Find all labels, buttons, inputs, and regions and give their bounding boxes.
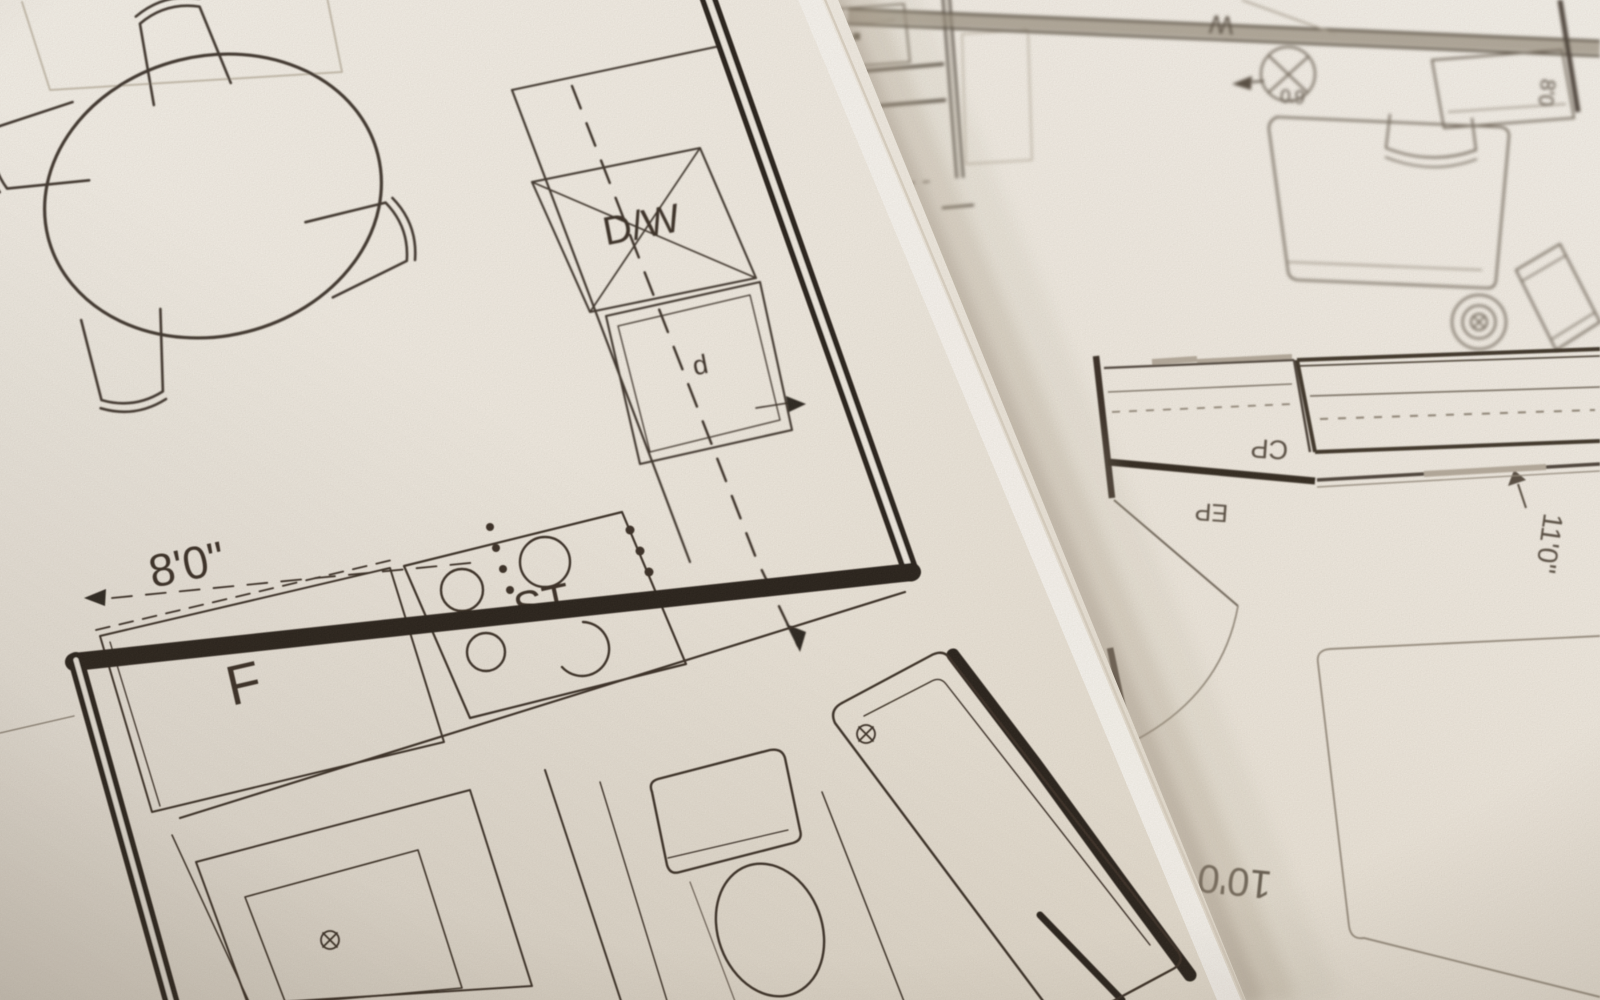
paper-grain <box>0 0 1600 1000</box>
floorplan-scene: F 6'0 W 6'0 8'0 <box>0 0 1600 1000</box>
blueprint-photo: F 6'0 W 6'0 8'0 <box>0 0 1600 1000</box>
